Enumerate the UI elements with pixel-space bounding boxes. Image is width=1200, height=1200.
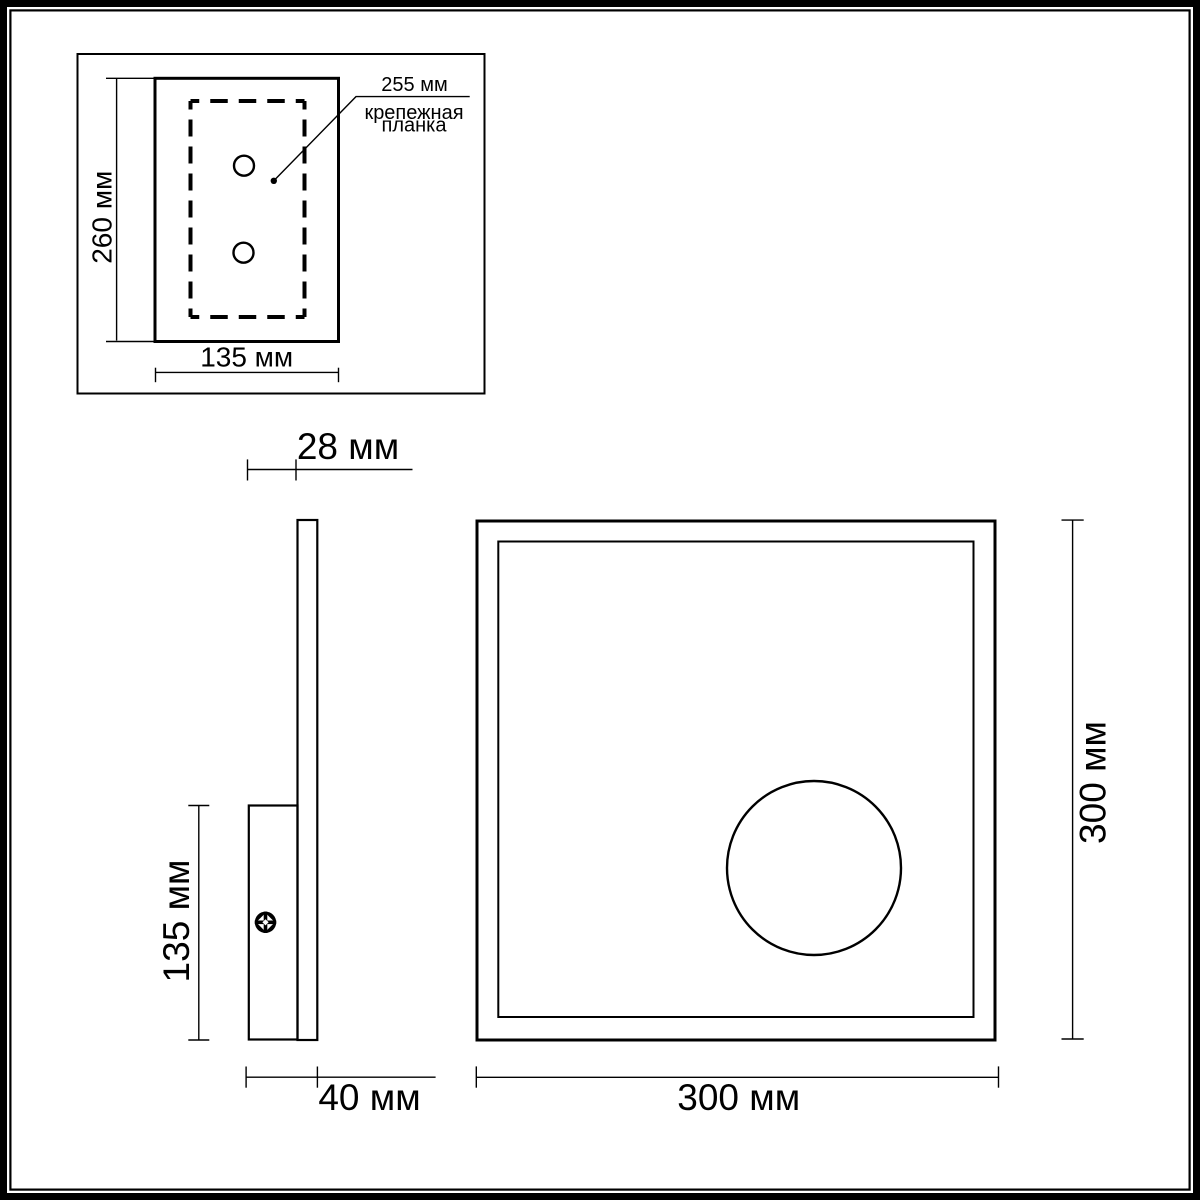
svg-text:255 мм: 255 мм — [381, 74, 447, 96]
svg-text:135 мм: 135 мм — [200, 342, 293, 373]
svg-text:40 мм: 40 мм — [318, 1077, 420, 1118]
svg-text:300 мм: 300 мм — [1073, 721, 1114, 844]
svg-text:260 мм: 260 мм — [87, 171, 118, 264]
svg-text:135 мм: 135 мм — [156, 860, 197, 983]
svg-text:300 мм: 300 мм — [677, 1077, 800, 1118]
svg-text:планка: планка — [382, 115, 448, 137]
svg-text:28 мм: 28 мм — [297, 426, 399, 467]
